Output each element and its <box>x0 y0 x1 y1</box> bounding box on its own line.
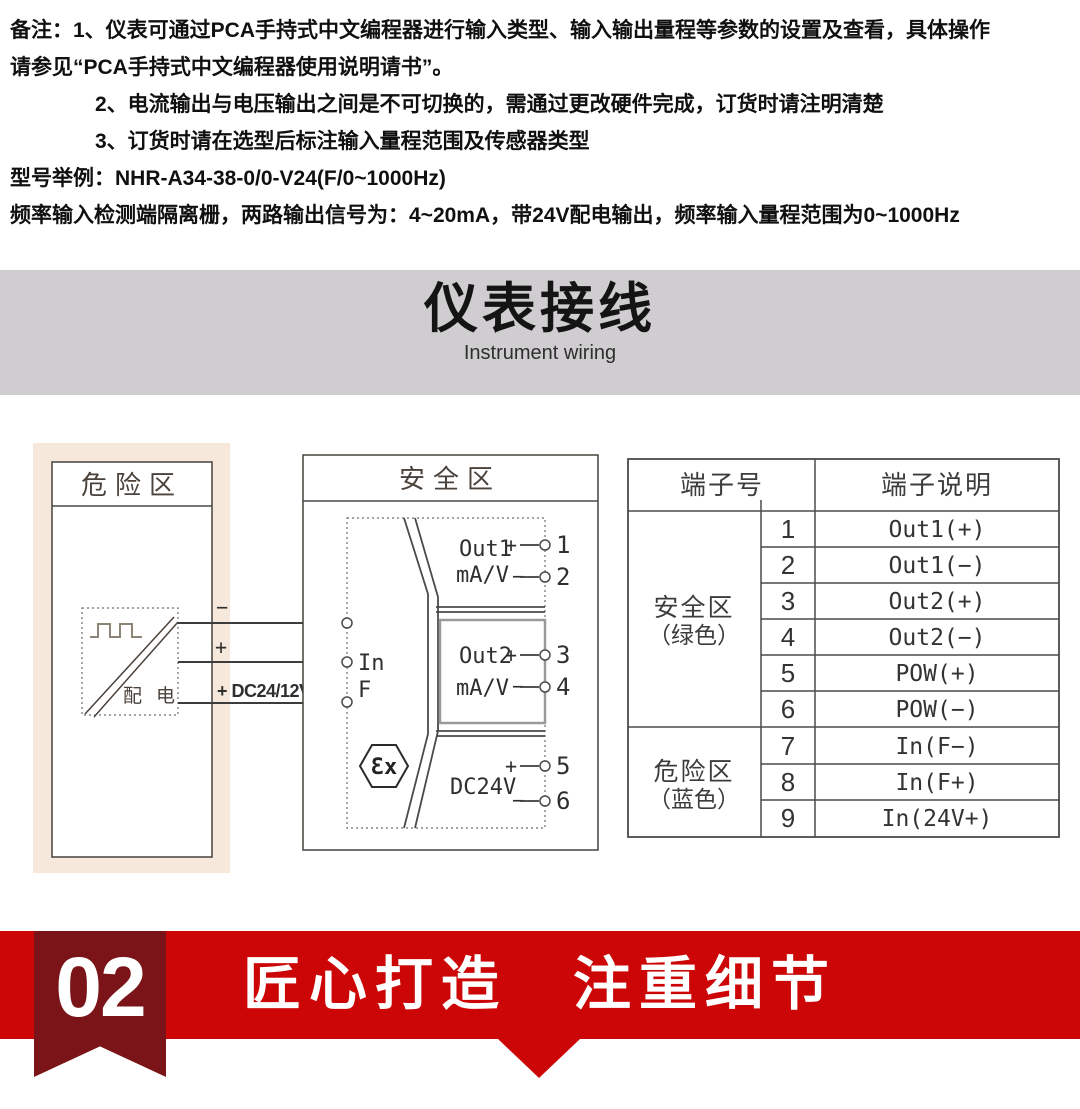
section-number: 02 <box>55 939 144 1036</box>
table-row-desc: In(24V+) <box>882 806 993 832</box>
model-example: 型号举例：NHR-A34-38-0/0-V24(F/0~1000Hz) <box>10 160 1080 197</box>
table-header-terminal-desc: 端子说明 <box>881 470 993 500</box>
table-row-no: 3 <box>781 586 795 616</box>
terminal-8-circle <box>342 657 352 667</box>
terminal-6-circle <box>540 796 550 806</box>
terminal-7-circle <box>342 618 352 628</box>
table-row-no: 9 <box>781 803 795 833</box>
wire-9-label: + DC24/12V <box>217 681 311 701</box>
wire-7-label: − <box>216 595 228 619</box>
pow-plus-sign: + <box>505 754 517 778</box>
hazard-title: 危险区 <box>81 471 183 501</box>
terminal-2-circle <box>540 572 550 582</box>
terminal-1-circle <box>540 540 550 550</box>
table-header-terminal-no: 端子号 <box>680 470 764 500</box>
section-banner: 仪表接线 Instrument wiring <box>0 270 1080 395</box>
table-row-no: 1 <box>781 514 795 544</box>
terminal-4-number: 4 <box>556 673 570 701</box>
dc24v-label: DC24V <box>450 775 516 800</box>
group-safe-label: 安全区 <box>653 594 734 622</box>
section-number-ribbon: 02 <box>34 931 166 1077</box>
terminal-5-circle <box>540 761 550 771</box>
wire-8-label: + <box>215 635 227 659</box>
out2-minus-sign: − <box>512 674 524 698</box>
terminal-6-number: 6 <box>556 787 570 815</box>
group-safe-color: （绿色） <box>648 622 740 648</box>
group-hazard-label: 危险区 <box>653 758 734 786</box>
table-row-desc: POW(+) <box>895 661 978 687</box>
wiring-diagram: 危险区 配 电 − + + DC24/12V 7 8 9 安全区 In F <box>0 430 1080 890</box>
table-row-desc: Out2(−) <box>889 625 986 651</box>
note-line-1: 备注：1、仪表可通过PCA手持式中文编程器进行输入类型、输入输出量程等参数的设置… <box>10 12 1080 49</box>
terminal-table: 端子号 端子说明 安全区 （绿色） 危险区 （蓝色） 1 2 3 4 5 6 7… <box>628 459 1059 837</box>
terminal-9-circle <box>342 697 352 707</box>
table-row-desc: In(F+) <box>895 770 978 796</box>
table-row-no: 5 <box>781 658 795 688</box>
note-line-2: 请参见“PCA手持式中文编程器使用说明请书”。 <box>10 49 1080 86</box>
out1-plus-sign: + <box>505 533 517 557</box>
terminal-4-circle <box>540 682 550 692</box>
input-label-f: F <box>358 678 371 703</box>
out1-minus-sign: − <box>512 564 524 588</box>
section-subtitle: Instrument wiring <box>0 341 1080 365</box>
section-title: 仪表接线 <box>0 270 1080 338</box>
model-description: 频率输入检测端隔离栅，两路输出信号为：4~20mA，带24V配电输出，频率输入量… <box>10 197 1080 234</box>
terminal-3-circle <box>540 650 550 660</box>
table-row-no: 7 <box>781 731 795 761</box>
table-row-desc: Out1(−) <box>889 553 986 579</box>
hazard-box <box>52 462 212 857</box>
notes-block: 备注：1、仪表可通过PCA手持式中文编程器进行输入类型、输入输出量程等参数的设置… <box>10 12 1080 234</box>
table-row-no: 8 <box>781 767 795 797</box>
safe-title: 安全区 <box>399 465 501 495</box>
terminal-3-number: 3 <box>556 641 570 669</box>
table-row-no: 2 <box>781 550 795 580</box>
group-hazard-color: （蓝色） <box>648 786 740 812</box>
note-line-3: 2、电流输出与电压输出之间是不可切换的，需通过更改硬件完成，订货时请注明清楚 <box>10 86 1080 123</box>
table-row-no: 6 <box>781 694 795 724</box>
terminal-1-number: 1 <box>556 531 570 559</box>
out2-plus-sign: + <box>505 643 517 667</box>
device-label: 配 电 <box>123 685 179 707</box>
pow-minus-sign: − <box>512 788 524 812</box>
datasheet-page: 备注：1、仪表可通过PCA手持式中文编程器进行输入类型、输入输出量程等参数的设置… <box>0 0 1080 1109</box>
table-row-desc: Out1(+) <box>889 517 986 543</box>
table-row-desc: In(F−) <box>895 734 978 760</box>
table-row-desc: POW(−) <box>895 697 978 723</box>
table-row-desc: Out2(+) <box>889 589 986 615</box>
terminal-2-number: 2 <box>556 563 570 591</box>
input-label-in: In <box>358 651 385 676</box>
footer-notch-triangle <box>498 1039 580 1078</box>
ex-mark-label: Ɛx <box>371 755 398 780</box>
out2-unit: mA/V <box>456 676 509 701</box>
table-row-no: 4 <box>781 622 795 652</box>
out1-unit: mA/V <box>456 563 509 588</box>
note-line-4: 3、订货时请在选型后标注输入量程范围及传感器类型 <box>10 123 1080 160</box>
terminal-5-number: 5 <box>556 752 570 780</box>
